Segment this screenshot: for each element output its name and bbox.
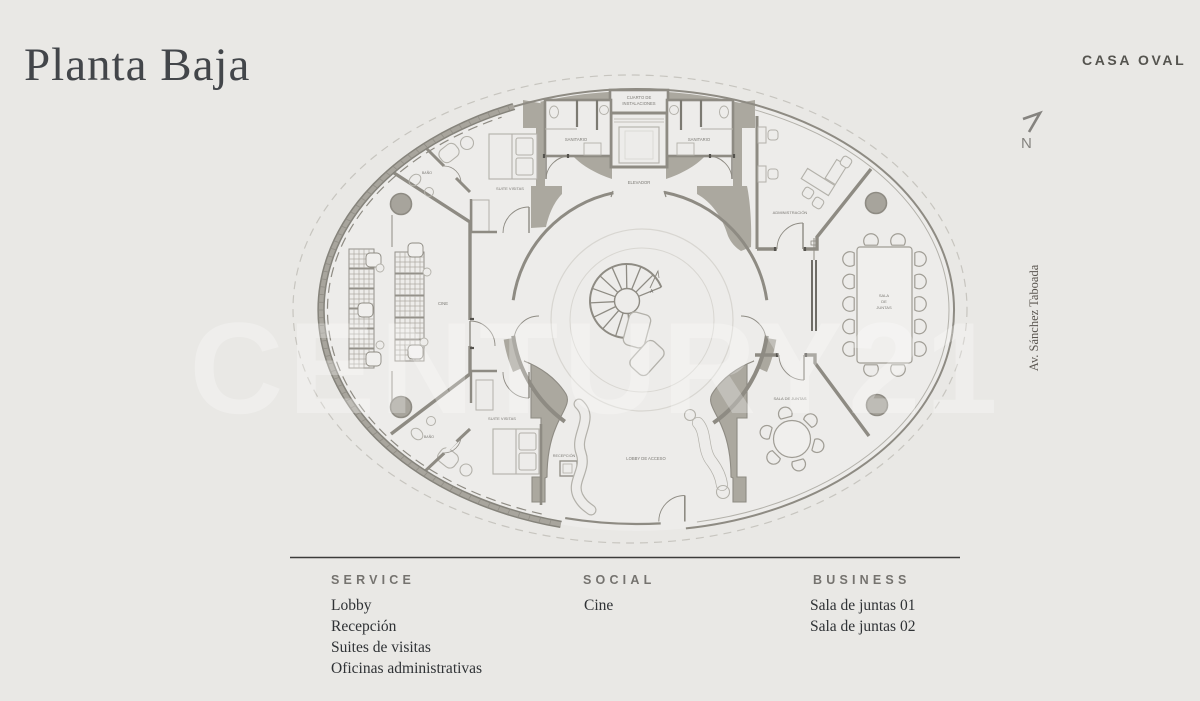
svg-text:Cine: Cine	[584, 597, 613, 614]
svg-text:Lobby: Lobby	[331, 597, 372, 614]
svg-text:Sala de juntas 01: Sala de juntas 01	[810, 597, 915, 614]
svg-text:BAÑO: BAÑO	[422, 170, 432, 175]
svg-text:LOBBY DE ACCESO: LOBBY DE ACCESO	[626, 456, 666, 461]
svg-text:CENTURY21: CENTURY21	[189, 295, 1002, 441]
svg-text:SERVICE: SERVICE	[331, 573, 415, 587]
svg-text:Suites de visitas: Suites de visitas	[331, 639, 431, 656]
svg-text:SANITARIO: SANITARIO	[565, 137, 588, 142]
svg-text:SANITARIO: SANITARIO	[688, 137, 711, 142]
svg-text:SUITE VISITAS: SUITE VISITAS	[496, 186, 524, 191]
svg-text:RECEPCIÓN: RECEPCIÓN	[553, 453, 576, 458]
svg-text:Av. Sánchez Taboada: Av. Sánchez Taboada	[1027, 264, 1041, 371]
svg-text:SOCIAL: SOCIAL	[583, 573, 655, 587]
svg-text:INSTALACIONES: INSTALACIONES	[622, 101, 655, 106]
svg-text:Oficinas administrativas: Oficinas administrativas	[331, 660, 482, 677]
svg-text:ADMINISTRACIÓN: ADMINISTRACIÓN	[773, 210, 808, 215]
svg-text:BUSINESS: BUSINESS	[813, 573, 911, 587]
svg-text:N: N	[1021, 135, 1032, 152]
svg-text:Sala de juntas 02: Sala de juntas 02	[810, 618, 915, 635]
svg-text:CUARTO DE: CUARTO DE	[627, 95, 652, 100]
svg-text:Recepción: Recepción	[331, 618, 397, 635]
svg-text:ELEVADOR: ELEVADOR	[628, 180, 651, 185]
